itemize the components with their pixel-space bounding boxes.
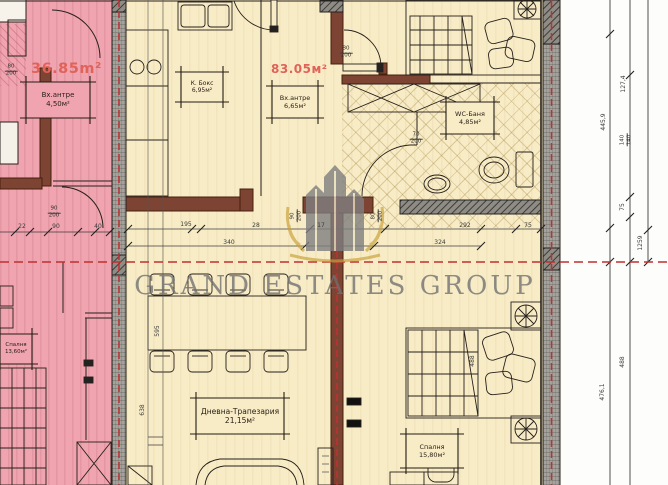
- room-area: 21,15м²: [225, 416, 255, 425]
- dim-28: 28: [252, 223, 260, 229]
- dim-595: 595: [155, 325, 161, 336]
- window-height-value: 140: [627, 134, 634, 147]
- door-height-value: 200: [378, 210, 385, 223]
- dim-22: 22: [18, 224, 26, 230]
- door-height-value: 200: [340, 53, 353, 60]
- dim-195: 195: [180, 222, 191, 228]
- room-name: Спалня: [5, 342, 26, 349]
- dim-right-488: 488: [620, 356, 626, 367]
- door-height-value: 200: [410, 139, 423, 146]
- door-height-value: 200: [48, 213, 61, 220]
- logo-buildings: [306, 165, 364, 251]
- room-label-bathroom: WC-Баня 4,85м²: [446, 102, 494, 134]
- room-area: 6,65м²: [284, 102, 306, 110]
- door-size-top-center: 80200: [340, 35, 353, 60]
- room-label-left-entry: Вх.антре 4,50м²: [26, 82, 90, 118]
- room-label-main-entry: Вх.антре 6,65м²: [272, 86, 318, 118]
- door-size-left-mid: 90200: [48, 195, 61, 220]
- room-name: Вх.антре: [280, 94, 311, 102]
- room-label-left-bedroom: Спалня 13,60м²: [0, 334, 32, 364]
- room-area: 6,95м²: [192, 87, 212, 95]
- dim-17: 17: [317, 223, 325, 229]
- dim-488-bedroom: 488: [470, 355, 476, 366]
- room-label-kitchen: К. Бокс 6,95м²: [181, 72, 223, 102]
- dim-292: 292: [459, 223, 470, 229]
- door-size-left-top: 80200: [5, 53, 18, 78]
- dim-476-1: 476,1: [600, 383, 606, 400]
- floor-plan: GRAND ESTATES GROUP 36.85m² 83.05м² Вх.а…: [0, 0, 668, 485]
- room-area: 4,50м²: [46, 100, 70, 109]
- room-area: 13,60м²: [5, 349, 27, 356]
- dim-445-9: 445,9: [601, 113, 607, 130]
- dim-40: 40: [94, 224, 102, 230]
- dim-90: 90: [52, 224, 60, 230]
- room-name: Дневна-Трапезария: [201, 407, 279, 416]
- door-height-value: 200: [5, 71, 18, 78]
- watermark-text: GRAND ESTATES GROUP: [134, 271, 536, 301]
- door-height-value: 200: [297, 210, 304, 223]
- door-size-hall-a: 90200: [279, 210, 304, 223]
- room-name: К. Бокс: [191, 80, 214, 88]
- dim-127-4: 127,4: [621, 75, 627, 92]
- room-label-living: Дневна-Трапезария 21,15м²: [196, 398, 284, 434]
- dim-right-75: 75: [620, 203, 626, 211]
- room-label-main-bedroom: Спалня 15,80м²: [406, 434, 458, 468]
- door-size-hall-b: 80200: [360, 210, 385, 223]
- room-area: 15,80м²: [419, 451, 445, 459]
- dim-638: 638: [140, 404, 146, 415]
- room-name: WC-Баня: [455, 110, 485, 118]
- dim-324: 324: [434, 240, 445, 246]
- dim-1259: 1259: [638, 235, 644, 250]
- window-size-right: 140140: [609, 134, 634, 147]
- door-size-wc: 70200: [410, 121, 423, 146]
- dim-75: 75: [524, 223, 532, 229]
- room-area: 4,85м²: [459, 118, 481, 126]
- area-label-main-unit: 83.05м²: [271, 62, 328, 76]
- area-label-left-unit: 36.85m²: [31, 61, 102, 77]
- dim-340: 340: [223, 240, 234, 246]
- room-name: Вх.антре: [42, 91, 75, 100]
- room-name: Спалня: [419, 443, 444, 451]
